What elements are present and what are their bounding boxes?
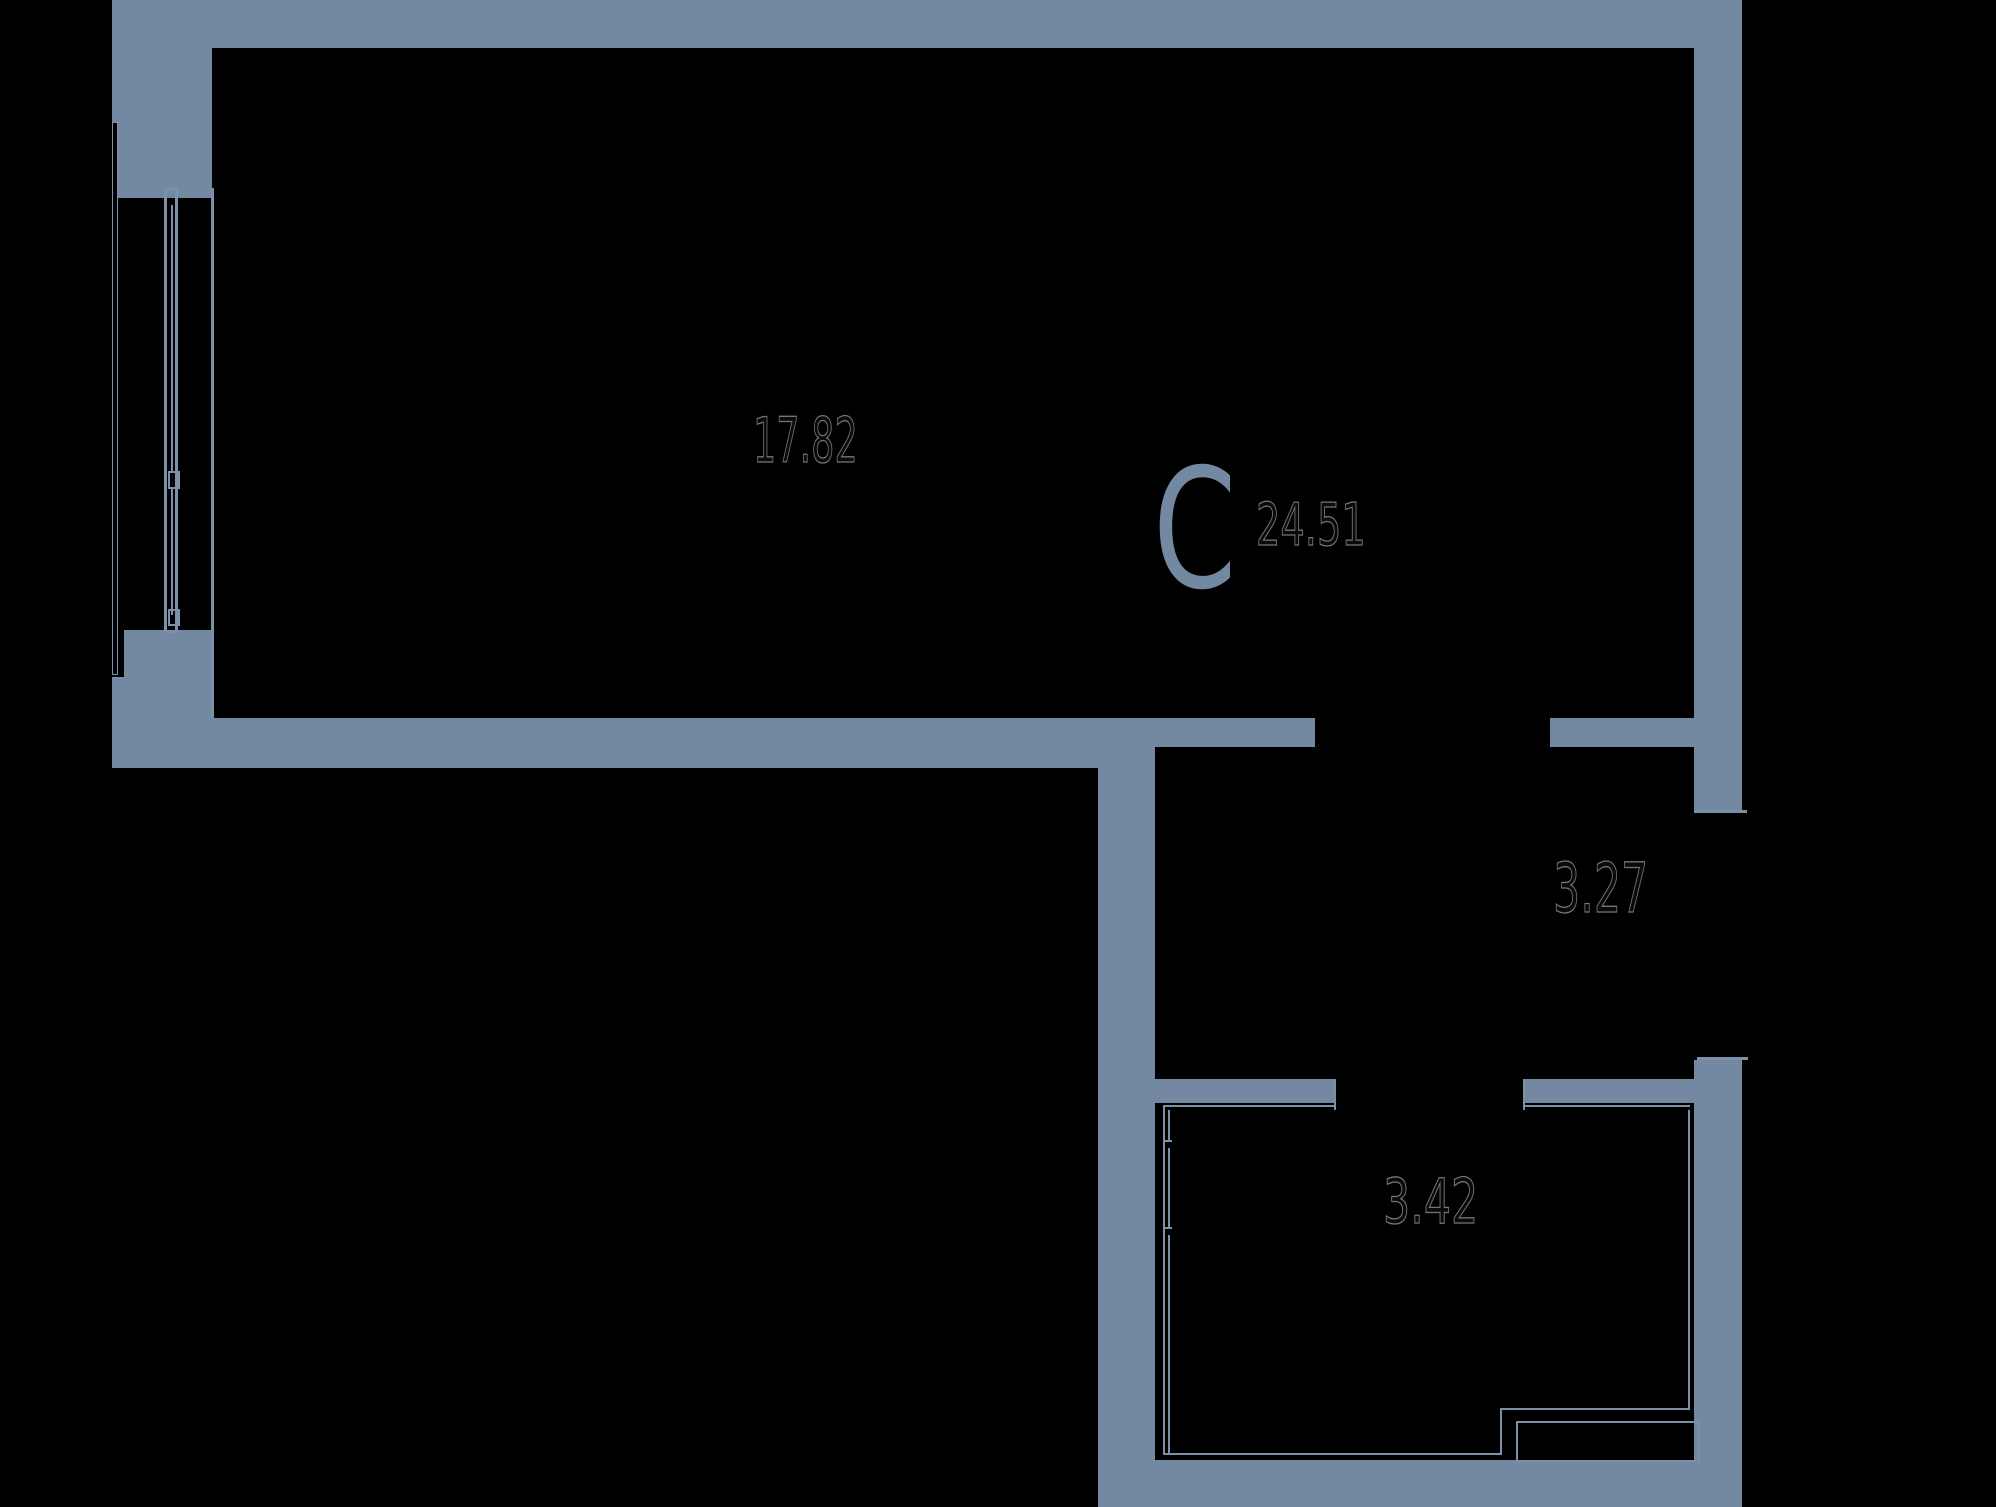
wall-left-window-head	[117, 122, 212, 198]
line-window-casement-upper	[171, 205, 173, 473]
box-window-bottom	[168, 609, 180, 626]
line-bath-outline-left-in-3	[1168, 1235, 1170, 1455]
label-area-main-room: 17.82	[753, 410, 858, 472]
label-area-hall: 3.27	[1553, 855, 1648, 924]
wall-bottom-main	[112, 718, 1155, 768]
box-window-midpost	[168, 471, 180, 489]
floor-plan: 17.82С24.513.273.42	[0, 0, 1996, 1507]
wall-bath-top-right	[1523, 1079, 1694, 1103]
wall-top	[112, 0, 1742, 48]
tick-bath-door-top	[1163, 1140, 1172, 1142]
wall-right-lower	[1694, 1060, 1742, 1507]
wall-mid-right	[1550, 718, 1694, 747]
line-window-left-frame	[164, 188, 167, 633]
line-threshold-entry-top	[1694, 810, 1747, 813]
wall-vertical-inner	[1098, 747, 1155, 1460]
line-threshold-entry-bottom	[1697, 1057, 1748, 1060]
wall-mid-left	[1155, 718, 1315, 747]
tick-bath-door-bottom	[1163, 1227, 1172, 1229]
wall-right-upper	[1694, 48, 1742, 810]
line-main-room-left-edge	[211, 188, 214, 718]
label-unit-letter: С	[1153, 448, 1236, 614]
line-window-bottom-cap	[164, 630, 178, 633]
line-bath-outline-bottom	[1165, 1453, 1502, 1455]
line-window-casement-lower	[171, 489, 173, 615]
line-bath-outline-left	[1163, 1105, 1165, 1455]
line-bath-outline-right	[1688, 1110, 1690, 1410]
wall-bottom-right	[1098, 1460, 1742, 1507]
line-window-top-cap	[164, 188, 178, 191]
label-area-total: 24.51	[1256, 495, 1366, 554]
line-bath-outline-top-b	[1523, 1105, 1690, 1107]
wall-left-pier-upper	[124, 630, 212, 677]
box-window-sill	[112, 122, 118, 675]
line-bath-outline-top-a	[1163, 1105, 1335, 1107]
line-bath-outline-left-in-1	[1168, 1110, 1170, 1140]
line-bath-outline-left-in-2	[1168, 1148, 1170, 1227]
wall-left-pier-lower	[112, 677, 212, 718]
label-area-bathroom: 3.42	[1383, 1171, 1478, 1233]
wall-left-upper	[112, 48, 212, 122]
line-bath-step-horizontal	[1500, 1408, 1690, 1410]
line-bath-step-vertical	[1500, 1408, 1502, 1455]
wall-bath-top-left	[1155, 1079, 1335, 1103]
box-duct-shaft	[1516, 1421, 1700, 1462]
line-window-right-frame	[175, 188, 178, 633]
